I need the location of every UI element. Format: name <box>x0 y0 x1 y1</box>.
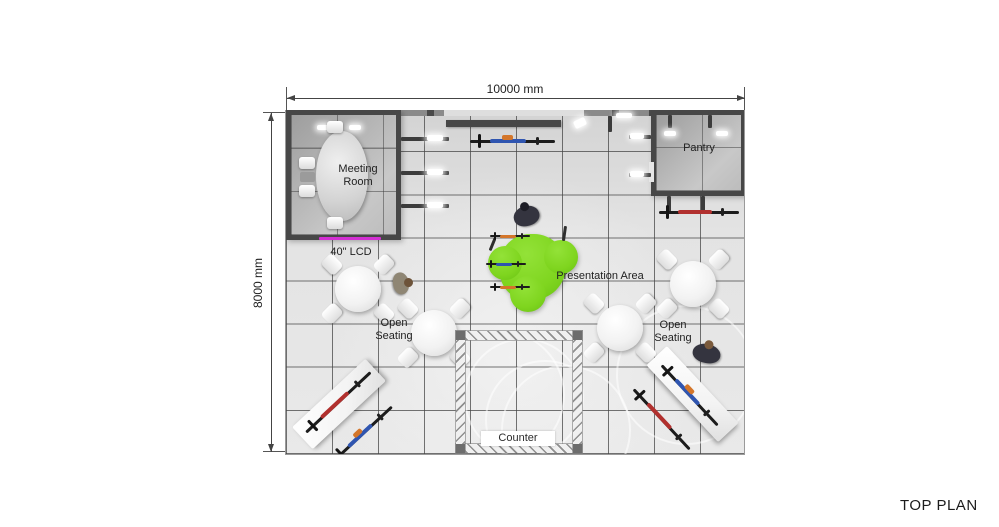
bike-icon <box>659 205 739 219</box>
bike-handlebar <box>666 205 669 219</box>
spotlight-icon <box>427 169 443 175</box>
meeting-room-label: Meeting Room <box>327 163 389 189</box>
truss-corner <box>573 444 582 453</box>
truss-bar <box>573 331 582 453</box>
counter-floor <box>465 340 573 444</box>
open-seating-right-label: Open Seating <box>643 319 703 345</box>
dim-arrow-up-icon <box>268 113 274 121</box>
mini-bike-icon <box>490 232 530 240</box>
top-wall-opening <box>444 110 584 116</box>
cabinet <box>300 172 315 182</box>
chair <box>396 346 419 369</box>
chair <box>327 217 343 229</box>
pantry-door-opening <box>649 162 654 182</box>
wall-stub <box>608 116 612 132</box>
bike-rear-bar <box>536 137 539 146</box>
spotlight-icon <box>616 113 632 118</box>
bike-handlebar <box>494 232 496 240</box>
hanging-sign <box>446 120 561 127</box>
wall-stub <box>708 115 712 128</box>
bike-rear-bar <box>521 233 523 238</box>
bike-frame <box>500 286 517 289</box>
spotlight-icon <box>630 171 644 177</box>
chair <box>372 253 395 276</box>
blob-lobe <box>544 240 578 274</box>
page-title: TOP PLAN <box>900 497 978 514</box>
dim-arrow-right-icon <box>737 95 745 101</box>
bike-frame <box>347 423 374 448</box>
spotlight-icon <box>427 202 443 208</box>
lcd-screen <box>319 237 381 240</box>
bike-frame <box>500 235 517 238</box>
mini-bike-icon <box>490 283 530 291</box>
spotlight-icon <box>427 135 443 141</box>
pantry-room: Pantry <box>651 110 745 196</box>
spotlight-icon <box>716 131 728 136</box>
spotlight-icon <box>349 125 361 130</box>
dim-label-height: 8000 mm <box>251 258 265 308</box>
chair <box>655 297 678 320</box>
chair <box>707 248 730 271</box>
person-figure <box>510 199 541 229</box>
spotlight-icon <box>664 131 676 136</box>
pantry-label: Pantry <box>664 142 734 155</box>
dim-extension-tick-top <box>263 112 287 113</box>
spotlight-icon <box>630 133 644 139</box>
bike-handlebar <box>478 134 481 148</box>
spotlight-icon <box>573 117 587 129</box>
bike-frame <box>678 210 712 214</box>
person-head <box>403 277 413 287</box>
truss-corner <box>456 331 465 340</box>
dim-arrow-down-icon <box>268 444 274 452</box>
table-top <box>335 266 381 312</box>
dim-extension-tick-bottom <box>263 451 287 452</box>
seating-table <box>655 246 731 322</box>
dim-line-left <box>271 113 272 452</box>
seating-table <box>320 251 396 327</box>
bike-rear-bar <box>517 261 519 266</box>
truss-corner <box>573 331 582 340</box>
bike-rear-bar <box>721 208 724 217</box>
chair <box>299 185 315 197</box>
table-top <box>670 261 716 307</box>
wall-stub <box>668 115 672 128</box>
bike-rear-bar <box>521 284 523 289</box>
floor: Meeting Room 40" LCD Pantry <box>285 110 745 455</box>
chair <box>299 157 315 169</box>
table-top <box>597 305 643 351</box>
open-seating-left-label: Open Seating <box>364 317 424 343</box>
presentation-area-label: Presentation Area <box>554 270 646 283</box>
bike-handlebar <box>494 283 496 291</box>
bike-rider <box>502 135 513 141</box>
dim-arrow-left-icon <box>287 95 295 101</box>
chair <box>448 297 471 320</box>
chair <box>327 121 343 133</box>
floor-plan-canvas: 10000 mm 8000 mm <box>0 0 999 527</box>
dim-label-width: 10000 mm <box>455 82 575 96</box>
counter-label: Counter <box>481 431 555 446</box>
bike-icon <box>470 134 555 148</box>
chair <box>320 302 343 325</box>
chair <box>582 341 605 364</box>
chair <box>707 297 730 320</box>
truss-corner <box>456 444 465 453</box>
truss-bar <box>456 331 582 340</box>
blob-lobe <box>510 276 546 312</box>
bike-frame <box>496 263 513 266</box>
mini-bike-icon <box>486 260 526 268</box>
truss-bar <box>456 331 465 453</box>
meeting-room: Meeting Room <box>286 110 401 240</box>
dim-line-top <box>287 98 745 99</box>
bike-handlebar <box>490 260 492 268</box>
